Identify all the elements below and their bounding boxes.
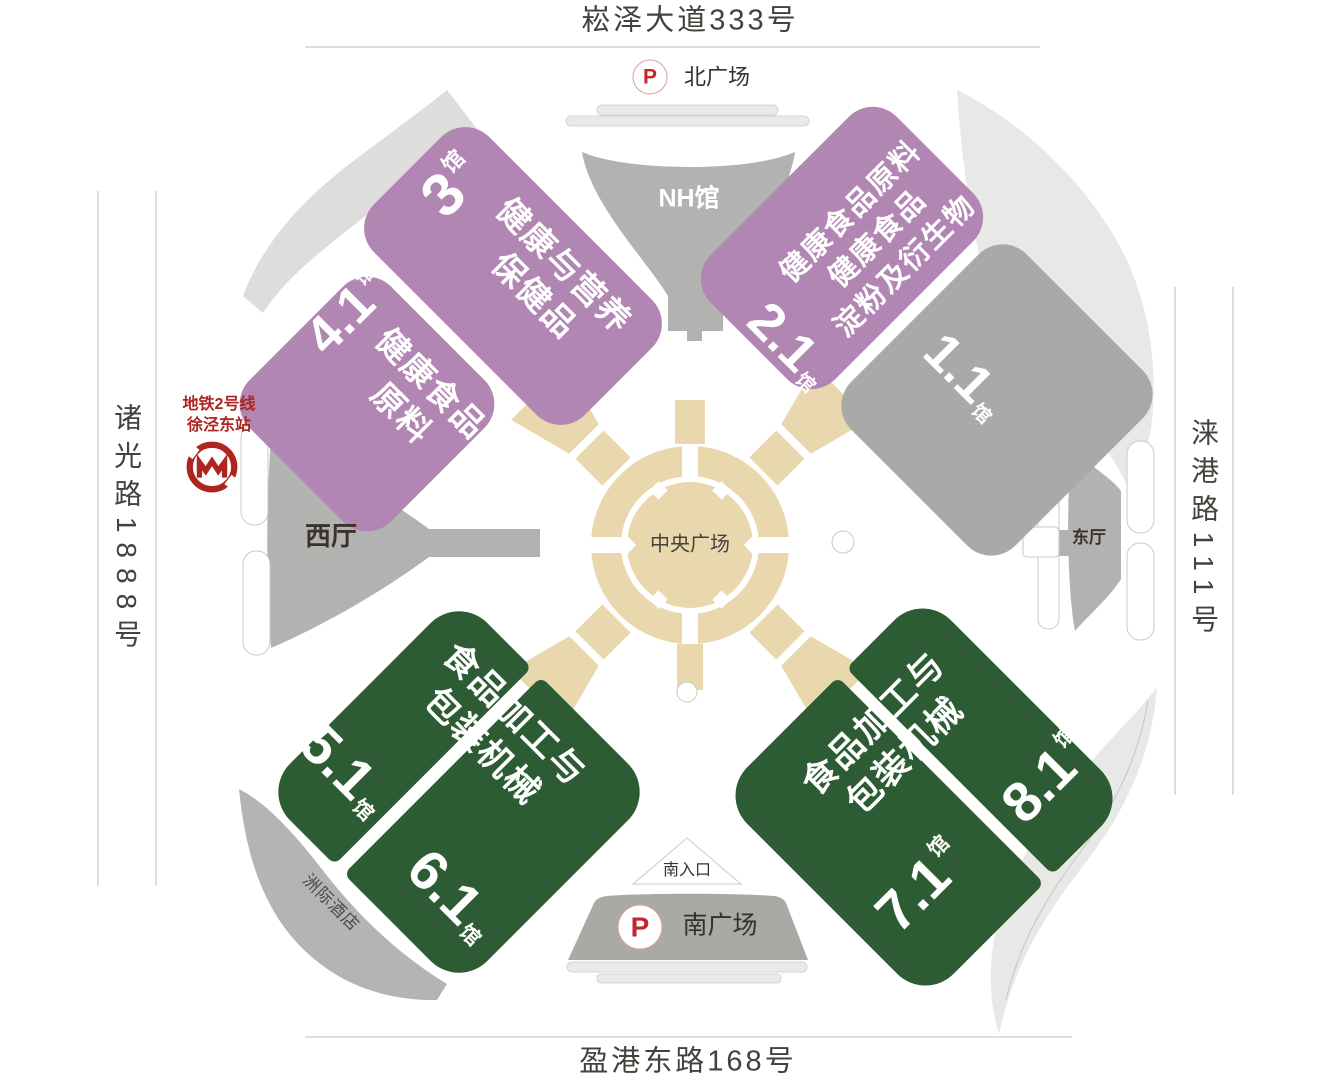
north-plaza-label: 北广场 [684, 64, 750, 89]
west-hall-label: 西厅 [305, 522, 357, 552]
road-label-top: 崧泽大道333号 [581, 4, 798, 37]
metro-line-text: 地铁2号线 [183, 395, 256, 416]
venue-map: 3馆 4.1馆 2.1馆 1.1馆 5.1馆 6.1馆 7.1馆 8.1馆 健康… [0, 0, 1319, 1091]
nh-hall-label: NH馆 [658, 185, 719, 214]
east-hall-label: 东厅 [1072, 528, 1106, 548]
metro-logo-icon [183, 438, 241, 496]
road-label-bottom: 盈港东路168号 [579, 1045, 796, 1078]
south-plaza-label: 南广场 [682, 912, 757, 941]
metro-station-text: 徐泾东站 [183, 416, 256, 437]
east-walkway-circle [832, 531, 854, 553]
road-label-right: 涞港路111号 [1187, 418, 1219, 643]
metro-station-label: 地铁2号线 徐泾东站 [183, 395, 256, 437]
central-plaza-label: 中央广场 [650, 534, 730, 557]
parking-icon-south: P [618, 905, 663, 950]
road-label-left: 诸光路1888号 [110, 403, 142, 657]
parking-icon-north: P [633, 60, 668, 95]
south-walkway-circle [677, 682, 697, 702]
south-entrance-label: 南入口 [663, 862, 711, 880]
